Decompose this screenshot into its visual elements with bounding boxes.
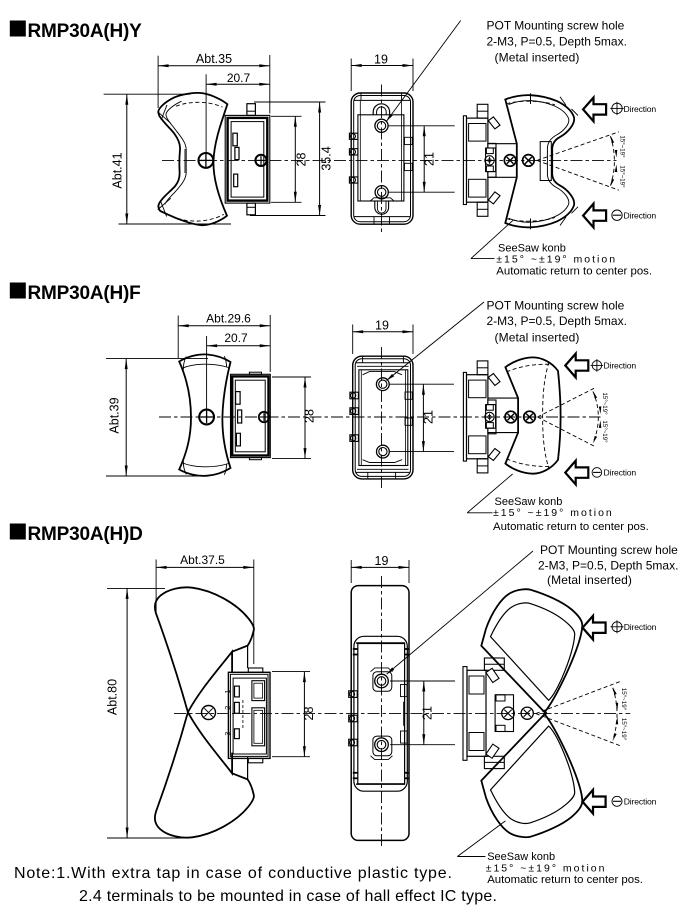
svg-text:2-M3, P=0.5, Depth 5max.: 2-M3, P=0.5, Depth 5max. xyxy=(538,558,678,572)
svg-text:Direction: Direction xyxy=(604,361,637,371)
svg-text:Abt.39: Abt.39 xyxy=(108,397,122,433)
svg-text:Direction: Direction xyxy=(624,622,657,632)
svg-text:RMP30A(H)Y: RMP30A(H)Y xyxy=(28,21,143,42)
svg-text:±15° ~±19° motion: ±15° ~±19° motion xyxy=(493,507,614,519)
svg-text:Abt.35: Abt.35 xyxy=(196,52,232,66)
svg-text:RMP30A(H)F: RMP30A(H)F xyxy=(28,283,141,304)
svg-text:2.4 terminals to be mounted in: 2.4 terminals to be mounted in case of h… xyxy=(79,888,497,905)
svg-text:(Metal inserted): (Metal inserted) xyxy=(547,573,632,587)
svg-text:15°~19°: 15°~19° xyxy=(620,688,627,711)
svg-text:(Metal inserted): (Metal inserted) xyxy=(495,330,580,344)
svg-text:19: 19 xyxy=(375,554,389,568)
svg-text:POT Mounting screw hole: POT Mounting screw hole xyxy=(540,543,678,557)
svg-text:1: 1 xyxy=(225,689,232,693)
svg-text:15°~19°: 15°~19° xyxy=(618,135,625,158)
svg-text:Automatic return to center pos: Automatic return to center pos. xyxy=(496,265,652,277)
svg-text:19: 19 xyxy=(374,52,388,66)
svg-text:±15° ~±19° motion: ±15° ~±19° motion xyxy=(486,862,607,874)
svg-text:2-M3, P=0.5, Depth 5max.: 2-M3, P=0.5, Depth 5max. xyxy=(487,314,627,328)
svg-text:Abt.37.5: Abt.37.5 xyxy=(180,553,225,567)
svg-text:Abt.41: Abt.41 xyxy=(111,152,125,188)
svg-text:20.7: 20.7 xyxy=(227,71,251,85)
svg-text:35.4: 35.4 xyxy=(320,146,334,170)
svg-text:SeeSaw konb: SeeSaw konb xyxy=(487,851,555,863)
svg-text:15°~19°: 15°~19° xyxy=(601,392,608,415)
svg-text:(Metal inserted): (Metal inserted) xyxy=(495,51,580,65)
svg-text:Abt.80: Abt.80 xyxy=(106,679,120,715)
svg-text:15°~19°: 15°~19° xyxy=(618,165,625,188)
svg-text:19: 19 xyxy=(375,319,389,333)
svg-text:3: 3 xyxy=(225,732,232,736)
svg-text:Direction: Direction xyxy=(624,797,657,807)
svg-text:Abt.29.6: Abt.29.6 xyxy=(206,312,251,326)
svg-text:RMP30A(H)D: RMP30A(H)D xyxy=(28,524,143,545)
svg-text:Direction: Direction xyxy=(604,468,637,478)
svg-text:POT Mounting screw hole: POT Mounting screw hole xyxy=(487,19,625,33)
svg-text:Automatic return to center pos: Automatic return to center pos. xyxy=(493,521,649,533)
svg-text:Automatic return to center pos: Automatic return to center pos. xyxy=(487,874,643,886)
svg-text:20.7: 20.7 xyxy=(224,331,248,345)
svg-text:±15° ~±19° motion: ±15° ~±19° motion xyxy=(496,254,617,266)
svg-text:Note:1.With extra tap in case: Note:1.With extra tap in case of conduct… xyxy=(14,865,453,882)
svg-text:2-M3, P=0.5, Depth 5max.: 2-M3, P=0.5, Depth 5max. xyxy=(487,34,627,48)
svg-text:Direction: Direction xyxy=(624,211,657,221)
svg-text:15°~19°: 15°~19° xyxy=(601,420,608,443)
svg-text:2: 2 xyxy=(225,706,232,710)
svg-text:Direction: Direction xyxy=(624,104,657,114)
svg-text:POT Mounting screw hole: POT Mounting screw hole xyxy=(487,298,625,312)
svg-text:SeeSaw konb: SeeSaw konb xyxy=(495,496,563,508)
svg-text:15°~19°: 15°~19° xyxy=(620,718,627,741)
svg-text:28: 28 xyxy=(295,153,309,167)
